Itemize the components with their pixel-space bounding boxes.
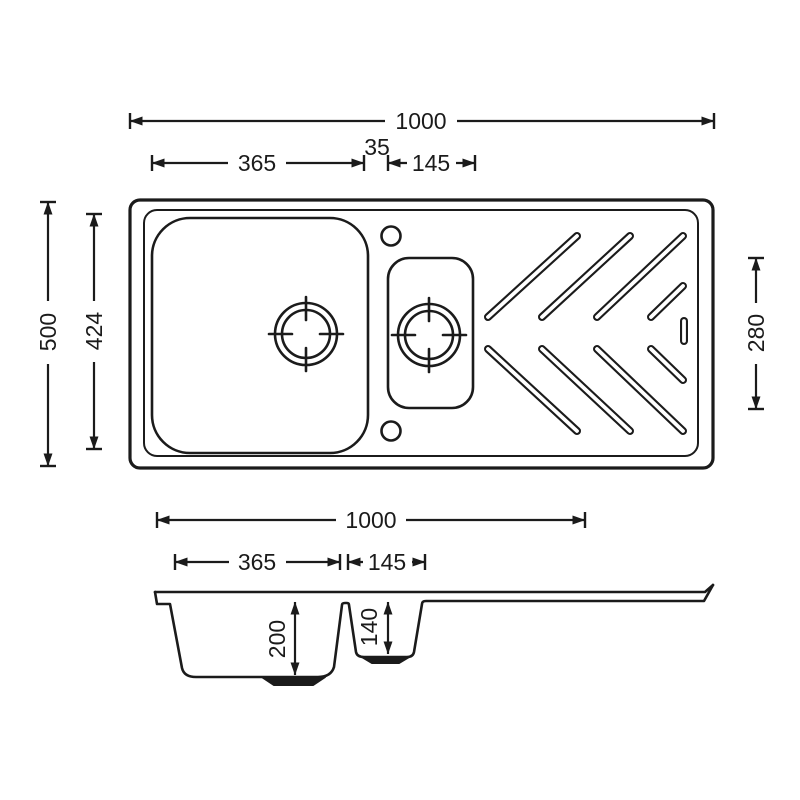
dim-side-main-bowl-depth: 200	[264, 602, 295, 675]
dim-bottom-overall-width: 1000	[157, 506, 585, 534]
dim-label: 365	[238, 549, 276, 575]
dim-label: 424	[81, 312, 107, 351]
dim-top-overall-width: 1000	[130, 107, 714, 135]
bowl-section-profile	[155, 585, 713, 677]
half-bowl-drain-icon	[392, 298, 466, 372]
dim-label: 200	[264, 620, 290, 658]
dim-label: 365	[238, 150, 276, 176]
dim-label: 1000	[345, 507, 396, 533]
technical-drawing-svg: 1000 365 35 145 500 424 280	[0, 0, 800, 800]
dim-bottom-half-bowl-width: 145	[348, 549, 425, 575]
dim-label: 280	[743, 314, 769, 352]
half-bowl-drain-section	[362, 657, 409, 663]
main-bowl-drain-icon	[269, 297, 343, 371]
main-bowl	[152, 218, 368, 453]
dim-top-half-bowl-width: 145	[388, 150, 475, 176]
drainer-grooves	[488, 236, 684, 431]
dim-right-half-bowl-length: 280	[742, 258, 770, 409]
tap-hole-top	[382, 227, 401, 246]
worktop-top-edge	[155, 585, 713, 592]
main-bowl-drain-section	[262, 677, 325, 685]
dim-label: 1000	[395, 108, 446, 134]
dim-left-overall-depth: 500	[34, 202, 62, 466]
dim-label: 145	[368, 549, 406, 575]
dim-label: 140	[356, 608, 382, 646]
sink-section-view	[155, 585, 713, 685]
dim-side-half-bowl-depth: 140	[356, 602, 388, 654]
dim-label: 35	[364, 134, 390, 160]
tap-hole-bottom	[382, 422, 401, 441]
dim-top-divider-width: 35	[364, 134, 390, 160]
dim-left-main-bowl-length: 424	[80, 214, 108, 449]
dim-label: 500	[35, 313, 61, 351]
dim-top-main-bowl-width: 365	[152, 150, 364, 176]
sink-top-view	[130, 200, 713, 468]
dim-bottom-main-bowl-width: 365	[175, 549, 340, 575]
dim-label: 145	[412, 150, 450, 176]
sink-dimension-drawing: 1000 365 35 145 500 424 280	[0, 0, 800, 800]
